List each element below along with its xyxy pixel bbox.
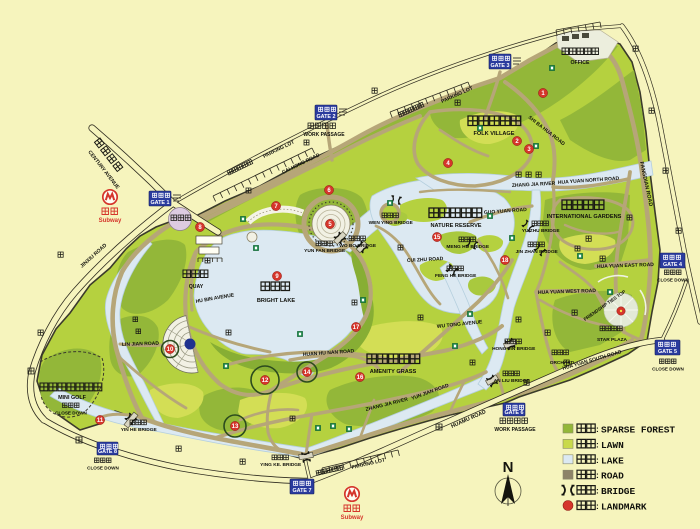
svg-text:13: 13 [232,424,239,430]
svg-text:11: 11 [97,418,104,424]
svg-text:GATE 8: GATE 8 [98,449,117,455]
svg-text::: : [596,424,599,434]
svg-text:GATE 3: GATE 3 [490,63,509,69]
svg-text:LAWN: LAWN [601,440,624,451]
svg-text:NATURE RESERVE: NATURE RESERVE [430,223,481,229]
svg-text:18: 18 [502,258,509,264]
svg-text:LANDMARK: LANDMARK [601,502,647,513]
svg-text::: : [596,455,599,465]
svg-text::: : [596,470,599,480]
svg-text:ROAD: ROAD [601,471,624,482]
svg-text:14: 14 [304,370,311,376]
svg-text:WO BO BRIDGE: WO BO BRIDGE [339,243,377,249]
svg-text:YU ZHU BRIDGE: YU ZHU BRIDGE [522,228,561,234]
svg-text:WORK PASSAGE: WORK PASSAGE [303,132,345,138]
svg-text:GATE 2: GATE 2 [316,114,335,120]
svg-text:BRIDGE: BRIDGE [601,486,636,497]
svg-text:N: N [503,459,514,476]
svg-text::: : [596,486,599,496]
svg-text:16: 16 [357,375,364,381]
svg-text:AN LIU BRIDGE: AN LIU BRIDGE [494,378,531,384]
svg-text:JIN ZHAN BRIDGE: JIN ZHAN BRIDGE [516,249,559,255]
svg-text:OFFICE: OFFICE [570,60,590,66]
svg-text:WEN YING BRIDGE: WEN YING BRIDGE [369,220,414,226]
svg-text:10: 10 [167,347,174,353]
svg-text:ORCHARD: ORCHARD [550,360,575,366]
svg-text:FENG HE BRIDGE: FENG HE BRIDGE [435,273,477,279]
svg-text:CLOSE DOWN: CLOSE DOWN [657,278,689,283]
svg-text:GATE 4: GATE 4 [663,262,682,268]
svg-text:17: 17 [353,325,360,331]
svg-text::: : [596,439,599,449]
svg-text:BRIGHT LAKE: BRIGHT LAKE [257,298,295,304]
svg-text:15: 15 [434,235,441,241]
svg-text:HONG JIN BRIDGE: HONG JIN BRIDGE [492,346,536,352]
svg-text:CLOSE DOWN: CLOSE DOWN [652,367,684,372]
svg-text:GATE 7: GATE 7 [292,488,311,494]
svg-text:LAKE: LAKE [601,455,624,466]
svg-text:Subway: Subway [341,515,364,521]
svg-text:SPARSE FOREST: SPARSE FOREST [601,425,675,436]
svg-text:YIN HE BRIDGE: YIN HE BRIDGE [121,427,158,433]
svg-text:YING KE. BRIDGE: YING KE. BRIDGE [260,462,302,468]
svg-text:INTERNATIONAL GARDENS: INTERNATIONAL GARDENS [547,214,622,220]
svg-text::: : [596,501,599,511]
svg-text:QUAY: QUAY [189,284,204,290]
svg-text:GATE 1: GATE 1 [150,200,169,206]
svg-text:12: 12 [262,378,269,384]
svg-text:WORK PASSAGE: WORK PASSAGE [494,427,536,433]
svg-text:GATE 6: GATE 6 [504,410,523,416]
svg-text:MINI GOLF: MINI GOLF [58,395,87,401]
svg-text:FOLK VILLAGE: FOLK VILLAGE [473,131,514,137]
svg-text:AMENITY GRASS: AMENITY GRASS [370,369,417,375]
svg-text:Subway: Subway [99,218,122,224]
svg-text:CLOSE DOWN: CLOSE DOWN [87,466,119,471]
svg-text:MENG HU BRIDGE: MENG HU BRIDGE [446,244,489,250]
svg-text:STAR PLAZA: STAR PLAZA [597,337,628,343]
svg-text:GATE 5: GATE 5 [658,349,677,355]
